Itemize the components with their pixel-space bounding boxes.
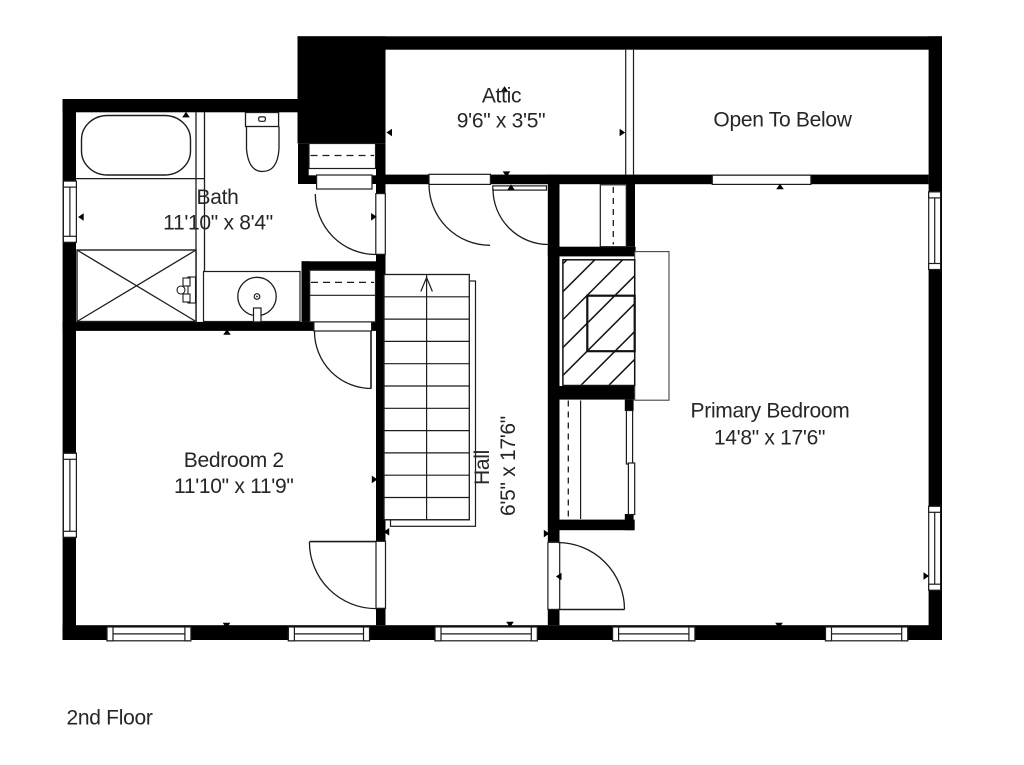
svg-text:Primary Bedroom: Primary Bedroom (691, 400, 850, 423)
svg-text:Attic: Attic (482, 85, 521, 108)
svg-text:11'10" x 8'4": 11'10" x 8'4" (163, 211, 273, 234)
svg-text:6'5" x 17'6": 6'5" x 17'6" (497, 416, 520, 516)
svg-text:11'10" x 11'9": 11'10" x 11'9" (174, 475, 294, 498)
svg-text:2nd Floor: 2nd Floor (67, 706, 153, 729)
svg-text:Bath: Bath (197, 186, 239, 209)
svg-text:14'8" x 17'6": 14'8" x 17'6" (714, 426, 825, 449)
svg-text:Open To Below: Open To Below (713, 108, 852, 131)
svg-text:Hall: Hall (471, 450, 494, 485)
svg-text:9'6" x 3'5": 9'6" x 3'5" (457, 109, 546, 132)
svg-text:Bedroom 2: Bedroom 2 (184, 449, 284, 472)
